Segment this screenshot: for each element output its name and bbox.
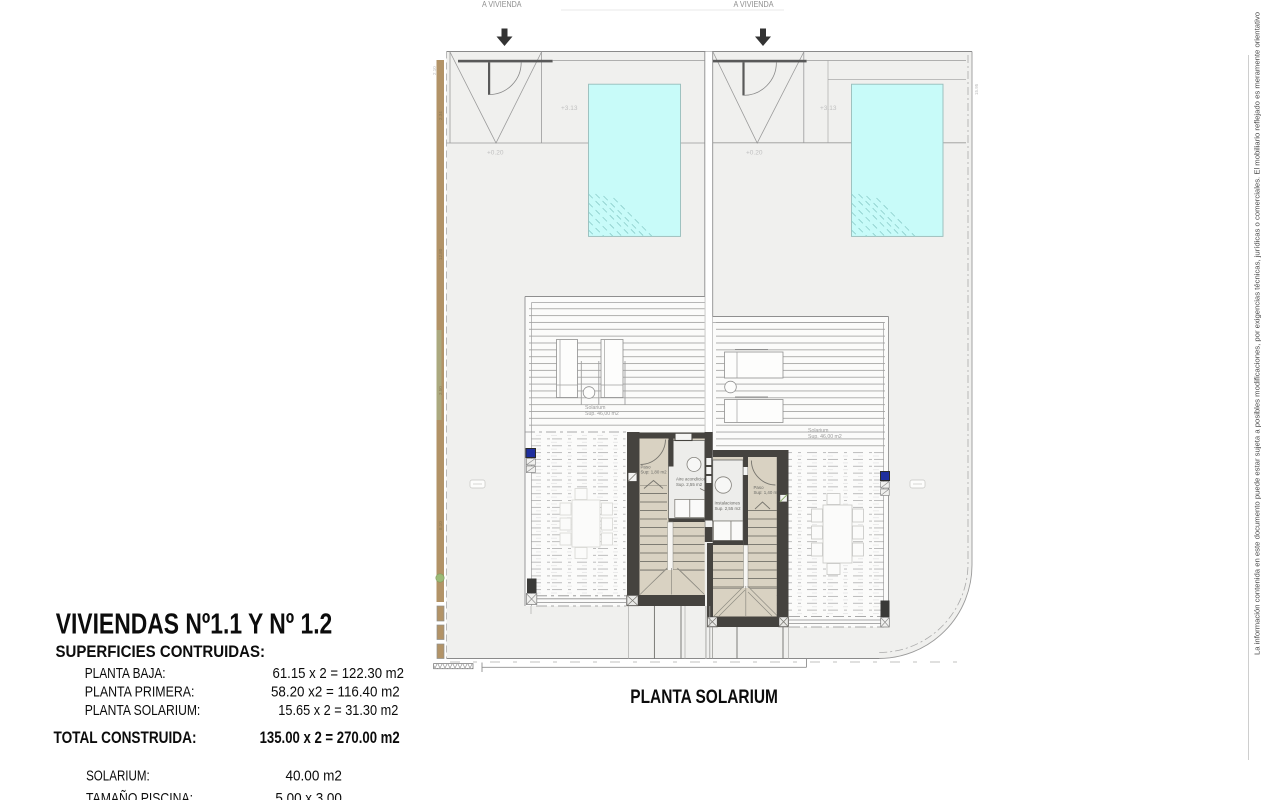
svg-text:PLANTA PRIMERA:: PLANTA PRIMERA: [85, 684, 195, 701]
svg-text:Sup: 1,40 m2: Sup: 1,40 m2 [754, 490, 781, 495]
svg-text:+0.20: +0.20 [487, 150, 504, 157]
svg-text:135.00 x 2 = 270.00 m2: 135.00 x 2 = 270.00 m2 [260, 728, 400, 747]
svg-text:+0.20: +0.20 [746, 150, 763, 157]
svg-text:VIVIENDAS Nº1.1 Y Nº 1.2: VIVIENDAS Nº1.1 Y Nº 1.2 [56, 609, 333, 641]
svg-text:PLANTA BAJA:: PLANTA BAJA: [85, 665, 166, 682]
svg-text:La información contenida en es: La información contenida en este documen… [1255, 12, 1262, 655]
svg-text:40.00 m2: 40.00 m2 [286, 768, 342, 785]
svg-text:Sup. 2,55 m2: Sup. 2,55 m2 [676, 482, 703, 487]
svg-text:5.00 x 3.00: 5.00 x 3.00 [275, 790, 342, 800]
svg-text:TAMAÑO PISCINA:: TAMAÑO PISCINA: [86, 790, 193, 800]
svg-text:3.50: 3.50 [438, 386, 443, 395]
svg-text:61.15 x 2 = 122.30 m2: 61.15 x 2 = 122.30 m2 [273, 665, 405, 682]
svg-text:8.10: 8.10 [438, 521, 443, 530]
svg-text:2.34: 2.34 [438, 111, 443, 120]
svg-text:SOLARIUM:: SOLARIUM: [86, 768, 150, 785]
svg-text:2.10: 2.10 [432, 66, 437, 75]
svg-text:PLANTA SOLARIUM:: PLANTA SOLARIUM: [85, 702, 201, 719]
svg-text:A VIVIENDA: A VIVIENDA [734, 0, 774, 9]
svg-text:Sup: 1,80 m2: Sup: 1,80 m2 [641, 470, 668, 475]
svg-text:SUPERFICIES CONTRUIDAS:: SUPERFICIES CONTRUIDAS: [56, 642, 266, 661]
svg-text:PLANTA SOLARIUM: PLANTA SOLARIUM [630, 687, 778, 708]
svg-text:58.20 x2 = 116.40 m2: 58.20 x2 = 116.40 m2 [271, 684, 400, 701]
svg-text:+3.13: +3.13 [820, 105, 837, 112]
svg-text:15.65 x 2 = 31.30 m2: 15.65 x 2 = 31.30 m2 [278, 702, 398, 719]
svg-text:TOTAL CONSTRUIDA:: TOTAL CONSTRUIDA: [54, 728, 197, 747]
svg-text:12.80: 12.80 [438, 248, 443, 260]
svg-text:Sup. 2,55 m2: Sup. 2,55 m2 [715, 506, 742, 511]
svg-text:15.95: 15.95 [974, 83, 979, 95]
svg-text:Sup. 46,00 m2: Sup. 46,00 m2 [808, 434, 842, 440]
svg-text:Instalaciones: Instalaciones [715, 501, 741, 506]
svg-text:A VIVIENDA: A VIVIENDA [482, 0, 522, 9]
svg-text:Sup. 46,00 m2: Sup. 46,00 m2 [585, 411, 619, 417]
svg-text:+3.13: +3.13 [561, 105, 578, 112]
